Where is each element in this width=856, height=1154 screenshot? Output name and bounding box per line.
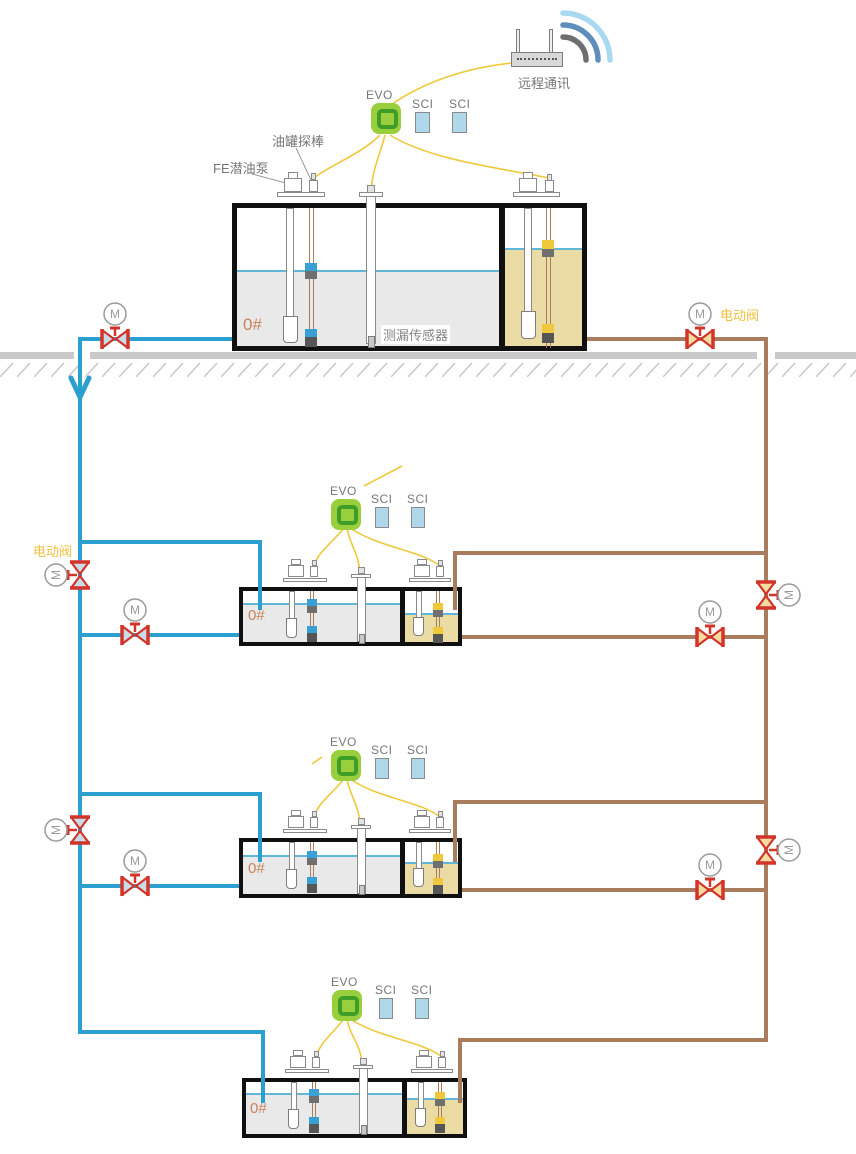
electric-valve-label: 电动阀	[720, 305, 759, 324]
pipe-blue	[80, 339, 263, 1103]
pipe-brown-trunk	[460, 339, 766, 1103]
motor-valve: M	[697, 601, 723, 647]
motor-m: M	[49, 825, 63, 835]
evo-label: EVO	[331, 975, 358, 989]
leak-sensor-label: 测漏传感器	[381, 325, 450, 344]
motor-m: M	[130, 603, 140, 617]
pipe-brown-fill-branch	[455, 802, 766, 862]
motor-m: M	[130, 854, 140, 868]
sci-label: SCI	[407, 492, 429, 506]
motor-m: M	[782, 590, 796, 600]
pipe-brown	[455, 339, 766, 1103]
motor-m: M	[782, 845, 796, 855]
motor-valve: M	[687, 303, 713, 349]
sci-label: SCI	[449, 97, 471, 111]
motor-valve: M	[697, 854, 723, 900]
sci-label: SCI	[407, 743, 429, 757]
pipe-blue-fill-branch	[80, 794, 260, 862]
motor-m: M	[705, 605, 715, 619]
motor-m: M	[695, 307, 705, 321]
motor-valve: M	[45, 817, 90, 843]
motor-valve: M	[122, 599, 148, 645]
sci-label: SCI	[411, 983, 433, 997]
sci-label: SCI	[375, 983, 397, 997]
evo-label: EVO	[330, 484, 357, 498]
sci-label: SCI	[371, 492, 393, 506]
pipe-blue-trunk	[80, 339, 263, 1103]
evo-label: EVO	[330, 735, 357, 749]
sci-label: SCI	[371, 743, 393, 757]
pipe-blue-fill-branch	[80, 542, 260, 610]
motor-valve: M	[122, 850, 148, 896]
motor-valve: M	[102, 303, 128, 349]
piping-layer: M M M	[0, 0, 856, 1154]
electric-valve-label: 电动阀	[33, 541, 72, 560]
motor-m: M	[110, 307, 120, 321]
piping-diagram: 0# 测漏传感器 EVO SCI SCI 远程通讯 油罐探棒 FE潜油泵 电动阀…	[0, 0, 856, 1154]
motor-m: M	[49, 570, 63, 580]
motor-m: M	[705, 858, 715, 872]
remote-comm-label: 远程通讯	[518, 73, 570, 92]
evo-label: EVO	[366, 88, 393, 102]
submersible-pump-label: FE潜油泵	[213, 158, 269, 177]
motor-valve: M	[756, 837, 800, 863]
sci-label: SCI	[412, 97, 434, 111]
motor-valve: M	[45, 562, 90, 588]
tank-probe-label: 油罐探棒	[272, 131, 324, 150]
motor-valve: M	[756, 582, 800, 608]
pipe-brown-fill-branch	[455, 553, 766, 610]
